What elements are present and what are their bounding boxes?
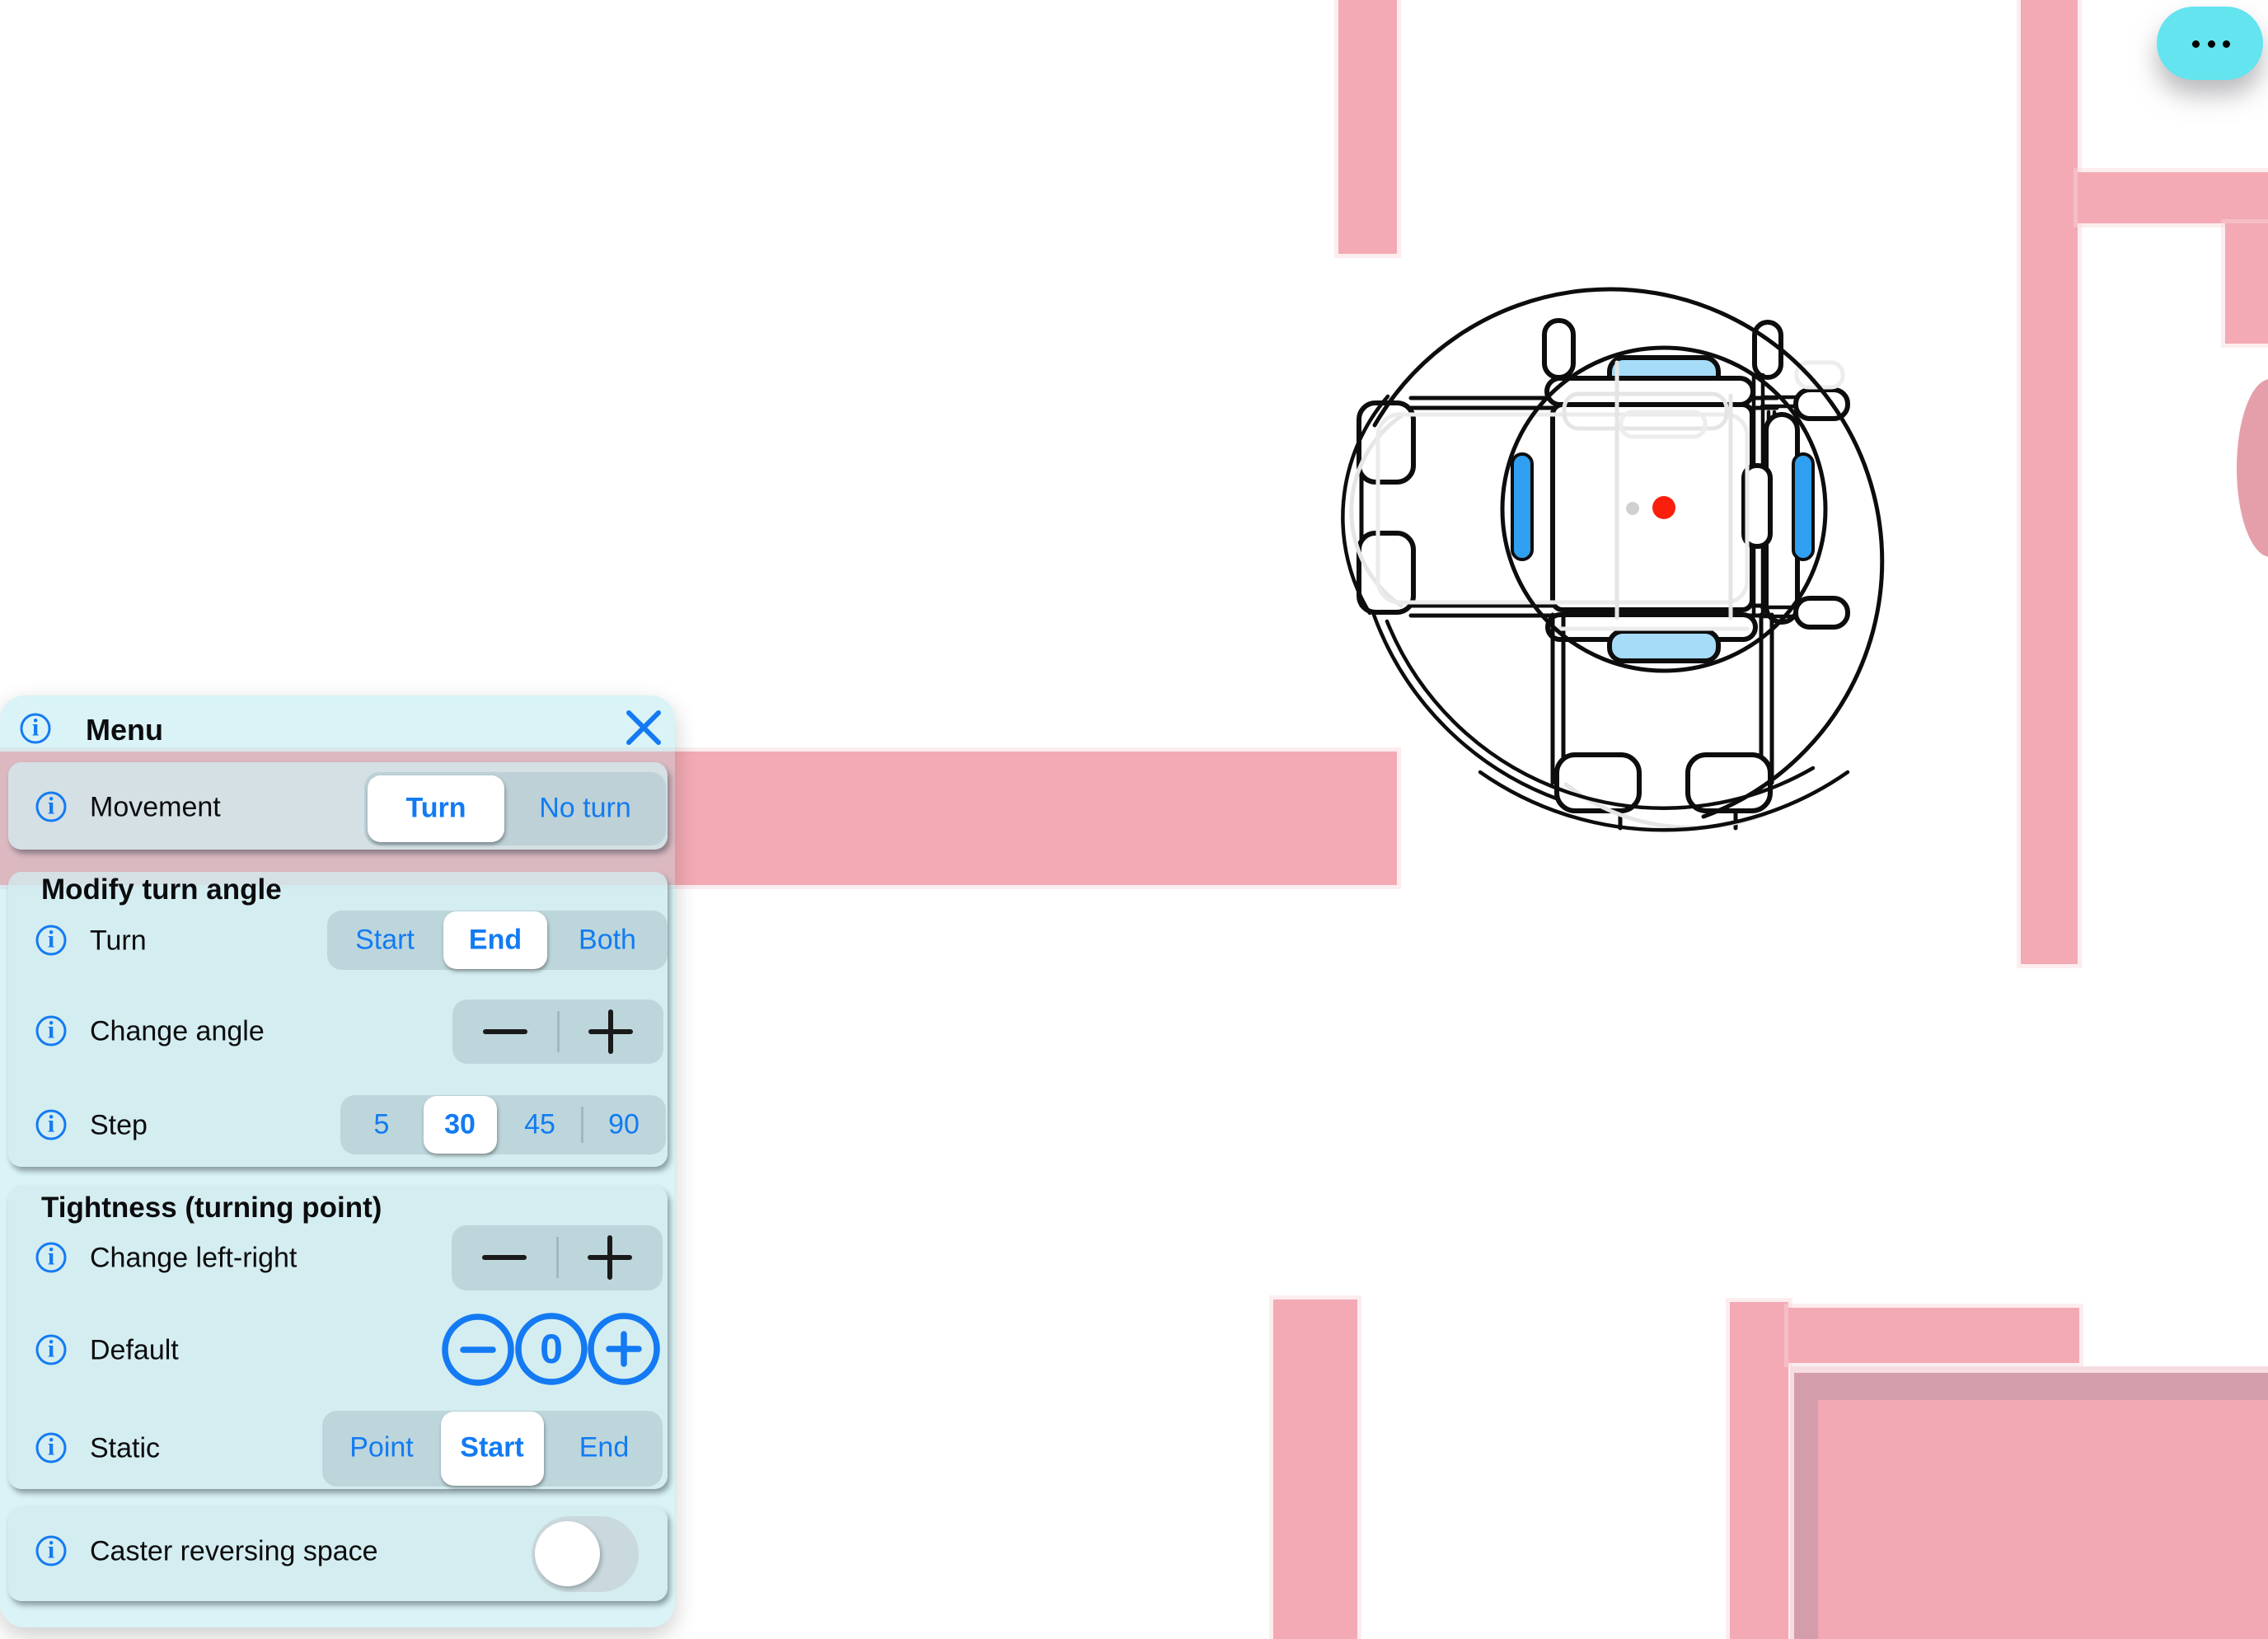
svg-text:0: 0 — [540, 1326, 563, 1372]
